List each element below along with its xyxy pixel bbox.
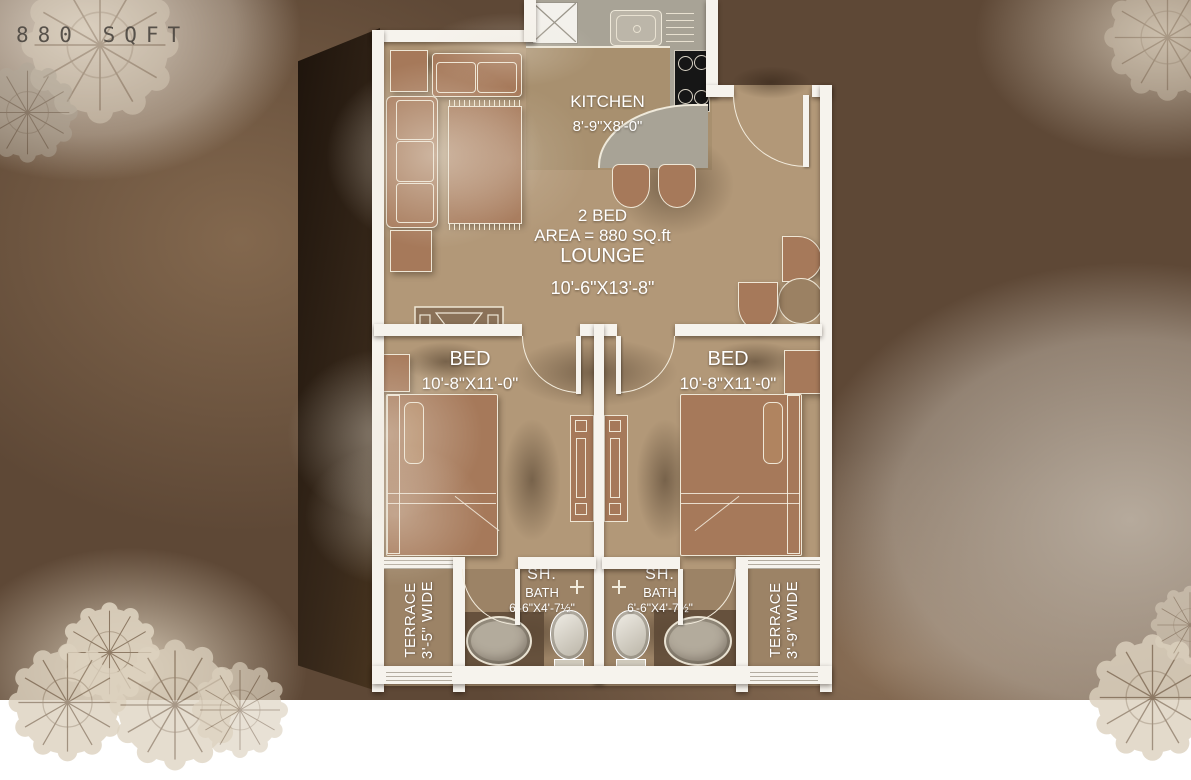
wash-basin-icon <box>466 616 532 666</box>
wall <box>820 85 832 692</box>
sofa-two-seat <box>432 53 522 97</box>
bath-right-door-leaf <box>678 569 683 625</box>
terrace-left-outer-window <box>386 669 452 681</box>
wall <box>374 324 522 336</box>
lounge-unit-type: 2 BED <box>510 206 695 226</box>
leaf-decoration <box>0 55 85 170</box>
terrace-right-name: TERRACE <box>767 581 784 659</box>
bedroom-right-name: BED <box>658 348 798 371</box>
bed-side-rail <box>787 395 800 554</box>
bedroom-left-label: BED 10'-8"X11'-0" <box>400 348 540 394</box>
wall <box>706 85 734 97</box>
wash-basin-icon <box>664 616 732 666</box>
bar-stool <box>658 164 696 208</box>
kitchen-name: KITCHEN <box>540 92 675 112</box>
bed-left <box>386 394 498 556</box>
bedroom-right-dims: 10'-8"X11'-0" <box>658 374 798 394</box>
plan-header: 2 BED 880 SQFT <box>16 0 189 56</box>
bedroom-left-dims: 10'-8"X11'-0" <box>400 374 540 394</box>
lounge-label: 2 BED AREA = 880 SQ.ft LOUNGE 10'-6"X13'… <box>510 206 695 299</box>
plan-area-label: 880 SQFT <box>16 14 189 56</box>
bedroom-right-door-leaf <box>616 336 621 394</box>
fridge-icon <box>532 2 578 44</box>
bed-right <box>680 394 802 556</box>
terrace-right-dims: 3'-9" WIDE <box>784 581 801 659</box>
terrace-right-window <box>748 557 820 569</box>
side-table <box>390 230 432 272</box>
terrace-left-dims: 3'-5" WIDE <box>419 581 436 659</box>
wardrobe <box>604 415 628 522</box>
drainboard-icon <box>666 13 694 43</box>
bedroom-right-label: BED 10'-8"X11'-0" <box>658 348 798 394</box>
bath-left-door-leaf <box>515 569 520 625</box>
wall <box>675 324 822 336</box>
plan-type-label: 2 BED <box>16 0 189 14</box>
wall <box>372 30 534 42</box>
wall <box>372 30 384 692</box>
kitchen-dims: 8'-9"X8'-0" <box>540 118 675 135</box>
wardrobe <box>570 415 594 522</box>
bedroom-left-door-leaf <box>576 336 581 394</box>
lounge-dims: 10'-6"X13'-8" <box>510 278 695 299</box>
terrace-left-window <box>384 557 453 569</box>
terrace-left-name: TERRACE <box>402 581 419 659</box>
sofa-three-seat <box>386 96 438 228</box>
wall <box>524 0 536 42</box>
corner-table <box>390 50 428 92</box>
lounge-unit-area: AREA = 880 SQ.ft <box>510 226 695 246</box>
leaf-decoration <box>185 655 295 765</box>
armchair <box>738 282 778 330</box>
bed-side-rail <box>387 395 400 554</box>
stove-icon <box>674 50 710 112</box>
terrace-right-label: TERRACE 3'-9" WIDE <box>748 562 820 678</box>
plan-3d-side <box>298 28 380 692</box>
wall <box>518 557 596 569</box>
toilet-icon <box>610 610 650 668</box>
terrace-left-label: TERRACE 3'-5" WIDE <box>384 562 454 678</box>
wall <box>594 324 604 684</box>
pillow <box>763 402 783 464</box>
entry-door-leaf <box>803 95 809 167</box>
kitchen-sink-icon <box>610 10 662 46</box>
bedroom-left-name: BED <box>400 348 540 371</box>
wall <box>602 557 680 569</box>
leaf-decoration <box>1095 0 1191 110</box>
terrace-right-outer-window <box>750 669 818 681</box>
lounge-name: LOUNGE <box>510 245 695 268</box>
leaf-decoration <box>1145 580 1191 670</box>
bar-stool <box>612 164 650 208</box>
round-table <box>778 278 824 324</box>
toilet-icon <box>548 610 588 668</box>
pillow <box>404 402 424 464</box>
wall <box>706 0 718 97</box>
kitchen-label: KITCHEN 8'-9"X8'-0" <box>540 92 675 135</box>
